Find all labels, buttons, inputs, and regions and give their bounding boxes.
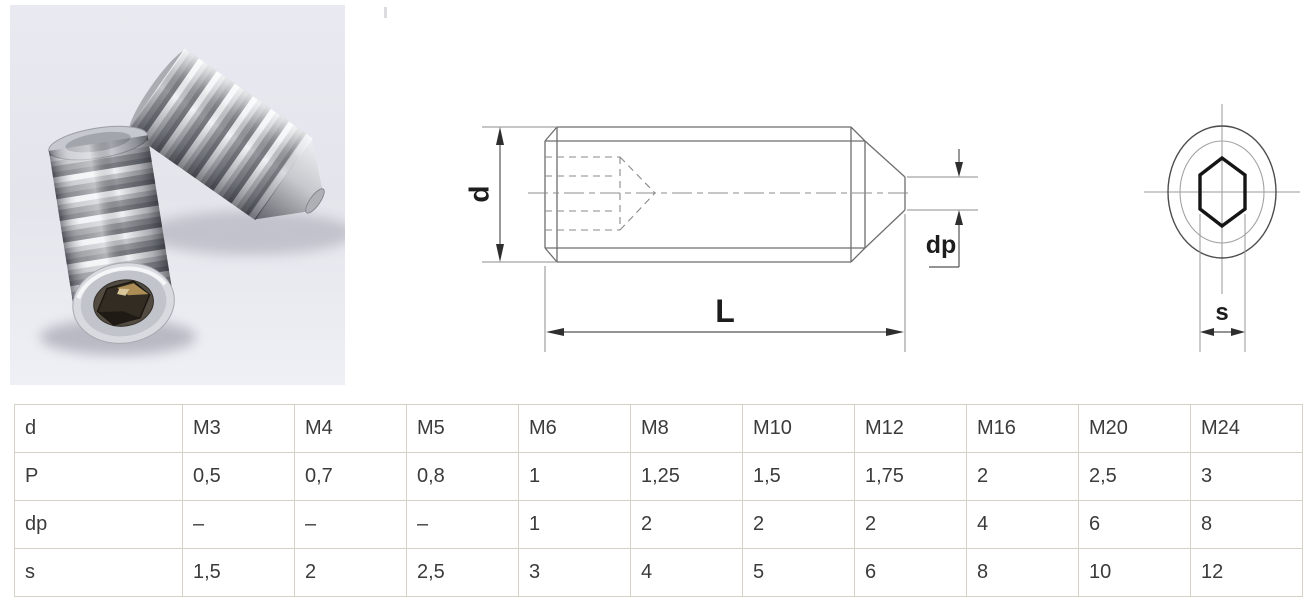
set-screw-datasheet: d L dp s: [0, 0, 1314, 610]
table-cell: 8: [967, 549, 1079, 597]
table-cell: 4: [631, 549, 743, 597]
table-cell: 2: [631, 501, 743, 549]
image-artifact: [384, 7, 387, 18]
table-cell: 1: [519, 453, 631, 501]
dimension-dp: dp: [907, 149, 978, 267]
table-cell: 1: [519, 501, 631, 549]
dimension-table: d M3 M4 M5 M6 M8 M10 M12 M16 M20 M24 P 0…: [14, 404, 1303, 597]
dimension-d: d: [464, 127, 558, 262]
table-cell: M4: [295, 405, 407, 453]
table-cell: 5: [743, 549, 855, 597]
dimension-label-s: s: [1215, 299, 1228, 326]
table-cell: M24: [1191, 405, 1303, 453]
table-cell: 1,75: [855, 453, 967, 501]
table-cell: M5: [407, 405, 519, 453]
table-row-P: P 0,5 0,7 0,8 1 1,25 1,5 1,75 2 2,5 3: [15, 453, 1303, 501]
table-cell: M12: [855, 405, 967, 453]
table-cell: 3: [1191, 453, 1303, 501]
product-photo: [10, 5, 345, 385]
table-cell: M16: [967, 405, 1079, 453]
dimension-label-d: d: [464, 185, 495, 202]
table-cell: 4: [967, 501, 1079, 549]
table-cell: 6: [1079, 501, 1191, 549]
table-cell: 0,7: [295, 453, 407, 501]
table-cell: 2: [855, 501, 967, 549]
table-cell: 2: [743, 501, 855, 549]
table-cell: M3: [183, 405, 295, 453]
table-cell: 2: [295, 549, 407, 597]
table-cell: 1,25: [631, 453, 743, 501]
table-cell: M20: [1079, 405, 1191, 453]
row-label: dp: [15, 501, 183, 549]
dimension-label-L: L: [715, 293, 735, 329]
table-row-d: d M3 M4 M5 M6 M8 M10 M12 M16 M20 M24: [15, 405, 1303, 453]
table-cell: M6: [519, 405, 631, 453]
table-cell: 3: [519, 549, 631, 597]
table-cell: 10: [1079, 549, 1191, 597]
table-cell: 0,5: [183, 453, 295, 501]
row-label: s: [15, 549, 183, 597]
point-cone: [865, 141, 905, 248]
table-cell: 2,5: [1079, 453, 1191, 501]
table-cell: 12: [1191, 549, 1303, 597]
table-row-dp: dp – – – 1 2 2 2 4 6 8: [15, 501, 1303, 549]
dimension-label-dp: dp: [926, 231, 957, 259]
table-cell: –: [183, 501, 295, 549]
table-cell: 2,5: [407, 549, 519, 597]
table-cell: M10: [743, 405, 855, 453]
table-cell: M8: [631, 405, 743, 453]
table-cell: 1,5: [183, 549, 295, 597]
table-cell: 8: [1191, 501, 1303, 549]
row-label: P: [15, 453, 183, 501]
table-cell: 1,5: [743, 453, 855, 501]
table-cell: –: [295, 501, 407, 549]
table-cell: 2: [967, 453, 1079, 501]
table-row-s: s 1,5 2 2,5 3 4 5 6 8 10 12: [15, 549, 1303, 597]
screw-outline: [545, 127, 905, 262]
end-view-drawing: s: [1130, 95, 1314, 360]
row-label: d: [15, 405, 183, 453]
side-view-drawing: d L dp: [440, 85, 1040, 365]
table-cell: 6: [855, 549, 967, 597]
table-cell: –: [407, 501, 519, 549]
set-screws-photo: [10, 5, 345, 385]
center-lines: [1144, 104, 1300, 294]
table-cell: 0,8: [407, 453, 519, 501]
